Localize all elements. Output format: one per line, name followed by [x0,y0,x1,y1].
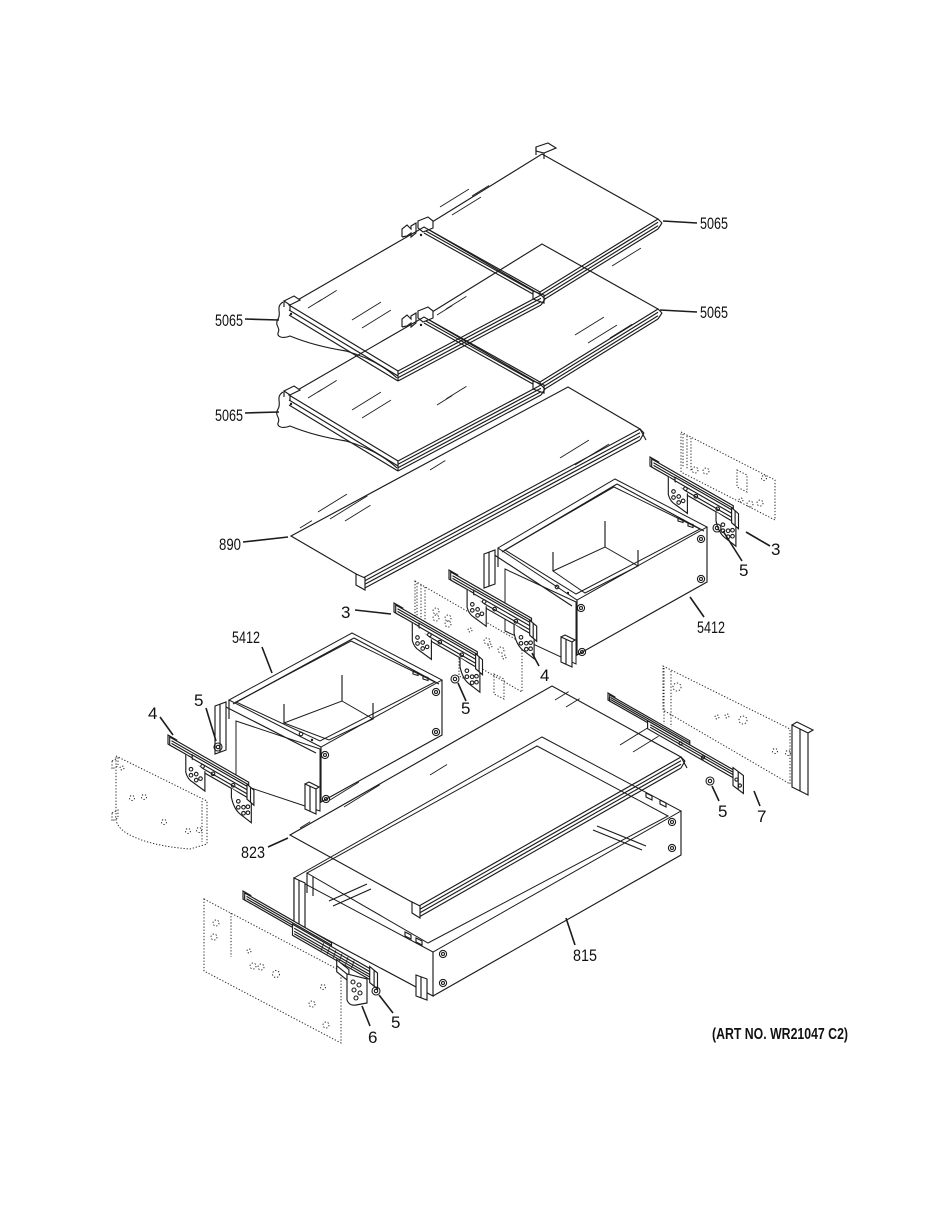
svg-text:3: 3 [771,540,780,559]
svg-text:5412: 5412 [697,618,725,637]
svg-text:5: 5 [718,802,727,821]
svg-text:6: 6 [368,1028,377,1047]
svg-text:4: 4 [148,704,157,723]
svg-text:5065: 5065 [700,303,728,322]
svg-text:890: 890 [219,535,241,554]
svg-text:823: 823 [241,843,265,862]
svg-text:5065: 5065 [215,406,243,425]
svg-text:5: 5 [461,699,470,718]
svg-text:5412: 5412 [232,628,260,647]
svg-text:5065: 5065 [215,311,243,330]
svg-text:4: 4 [540,666,549,685]
svg-text:5: 5 [391,1013,400,1032]
svg-text:(ART NO. WR21047 C2): (ART NO. WR21047 C2) [712,1026,848,1043]
svg-text:3: 3 [341,603,350,622]
svg-text:5: 5 [194,691,203,710]
svg-text:5: 5 [739,561,748,580]
svg-text:5065: 5065 [700,214,728,233]
svg-text:815: 815 [573,946,597,965]
svg-text:7: 7 [757,807,766,826]
